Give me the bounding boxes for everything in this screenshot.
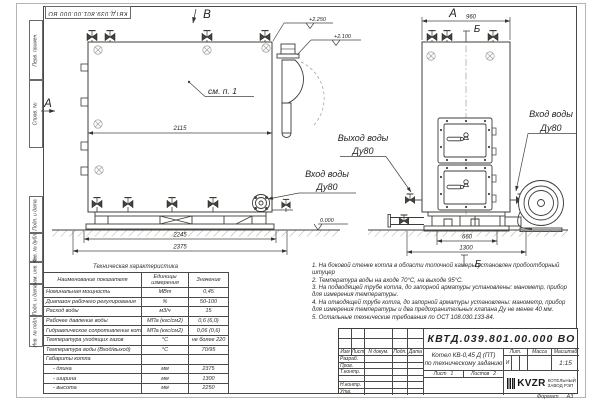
table-row: Габариты котла xyxy=(44,355,229,365)
chimney-elbow xyxy=(277,44,324,137)
drawing-sheet: { "stamp_top": "КВТД.039.801.00.000 ВО",… xyxy=(0,0,600,400)
rev-header-podp: Подп. xyxy=(393,349,408,356)
support-skid-front xyxy=(424,212,509,231)
note-line: 3. На подводящей трубе котла, до запорно… xyxy=(312,285,575,299)
table-row: - высотамм2250 xyxy=(44,383,229,393)
dim-side-top: 2115 xyxy=(173,126,188,132)
side-external-valve xyxy=(272,199,293,212)
document-name: Котел КВ-0,45 Д (ПТ) по техническому зад… xyxy=(424,349,504,371)
dim-front-bottom: 1300 xyxy=(459,246,473,252)
section-label-b-top: Б xyxy=(474,24,481,35)
document-designation: КВТД.039.801.00.000 ВО xyxy=(424,329,579,349)
table-row: Диапазон рабочего регулирования%50-100 xyxy=(44,297,229,307)
table-row: Температура уходящих газов°Сне более 220 xyxy=(44,335,229,345)
door-handle-icon xyxy=(447,185,464,189)
table-row: Номинальная мощностьМВт0,45 xyxy=(44,288,229,298)
view-label-b: В xyxy=(203,9,211,21)
masshtab-header: Масштаб xyxy=(552,349,579,356)
scale-value: 1:15 xyxy=(552,356,579,371)
rev-header-data: Дата xyxy=(408,349,424,356)
sheet-cell: Лист1 xyxy=(424,371,464,378)
blower-fan xyxy=(505,181,564,232)
ground-side xyxy=(52,230,340,237)
sign-row-utv: Утв. xyxy=(339,389,365,396)
elevation-ground: 0.000 xyxy=(320,218,335,224)
technical-notes: 1. На боковой стенке котла в области топ… xyxy=(312,263,575,322)
rev-header-list: Лист xyxy=(352,349,365,356)
support-skid-side xyxy=(86,212,274,229)
lit-header: Лит. xyxy=(504,349,528,356)
tech-table: Наименование показателя Единицы измерени… xyxy=(43,272,229,394)
table-row: - длинамм2375 xyxy=(44,364,229,374)
elevation-mid: +2.100 xyxy=(334,34,352,40)
inlet-flange xyxy=(253,195,270,212)
inlet-side-label-line2: Ду80 xyxy=(316,182,338,192)
view-label-a-front: А xyxy=(448,8,457,20)
outlet-valve-assembly xyxy=(388,194,424,227)
roof-valve-icons-front xyxy=(427,31,498,42)
side-wall-brackets xyxy=(81,64,88,175)
dim-front-top: 960 xyxy=(466,15,477,21)
format-label: Формат А3 xyxy=(520,394,590,400)
note-line: 4. На отводящей трубе котла, до запорной… xyxy=(312,300,575,314)
rev-header-ndokum: N докум. xyxy=(365,349,393,356)
title-block: Изм Лист N докум. Подп. Дата Разраб. Про… xyxy=(338,328,578,394)
outlet-label-line1: Выход воды xyxy=(338,133,389,143)
door-handle-icon xyxy=(447,137,464,141)
note-line: 5. Остальные технические требования по О… xyxy=(312,315,575,322)
company-logo-text: KVZR xyxy=(517,378,545,389)
roof-valve-icons xyxy=(87,31,270,42)
lower-furnace-door xyxy=(438,165,496,210)
company-cell: KVZR КОТЕЛЬНЫЙ ЗАВОД РЭП xyxy=(504,371,579,395)
dim-side-bottom: 2375 xyxy=(172,245,187,251)
tech-table-title: Техническая характеристика xyxy=(43,264,228,270)
inlet-front-label-line2: Ду80 xyxy=(540,123,562,133)
note-line: 1. На боковой стенке котла в области топ… xyxy=(312,263,575,277)
dim-front-mid: 660 xyxy=(462,235,473,241)
table-row: Рабочее давление водыМПа (кгс/см2)0,6 (6… xyxy=(44,316,229,326)
table-row: Расход водым3/ч15 xyxy=(44,307,229,317)
massa-value xyxy=(528,356,552,371)
rev-header-izm: Изм xyxy=(339,349,352,356)
company-logo-icon xyxy=(507,378,515,389)
lit-value: И xyxy=(504,356,512,371)
table-row: - ширинамм1300 xyxy=(44,374,229,384)
table-header-row: Наименование показателя Единицы измерени… xyxy=(44,273,229,288)
view-label-a-side: А xyxy=(43,98,52,110)
outlet-label-line2: Ду80 xyxy=(352,146,374,156)
dim-side-mid: 2245 xyxy=(172,233,187,239)
elevation-top: +2.250 xyxy=(309,17,327,23)
upper-furnace-door xyxy=(438,118,496,163)
table-row: Температура воды (Вход/выход)°С70/95 xyxy=(44,345,229,355)
sheets-cell: Листов2 xyxy=(464,371,504,378)
table-row: Гидравлическое сопротивление котлаМПа (к… xyxy=(44,326,229,336)
side-view xyxy=(52,31,340,237)
inlet-front-label-line1: Вход воды xyxy=(529,109,573,119)
callout-see-note: см. п. 1 xyxy=(208,86,237,96)
note-line: 2. Температура воды на входе 70°С, на вы… xyxy=(312,278,575,285)
massa-header: Масса xyxy=(528,349,552,356)
inlet-side-label-line1: Вход воды xyxy=(305,169,349,179)
